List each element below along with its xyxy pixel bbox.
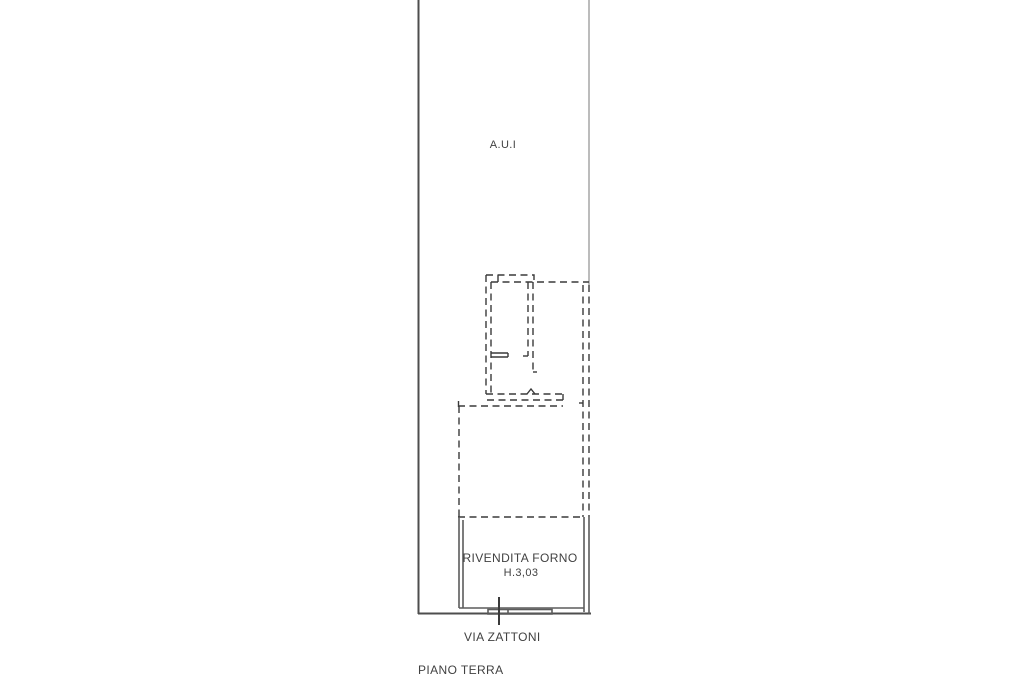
lower-room-dashed-outline <box>458 401 584 517</box>
upper-room-top-outer <box>486 275 534 282</box>
room-name-label: RIVENDITA FORNO <box>462 551 577 565</box>
street-label: VIA ZATTONI <box>464 630 541 644</box>
entrance-threshold <box>488 610 552 615</box>
area-label: A.U.I <box>490 139 516 151</box>
upper-room-dashed-outline <box>486 275 589 400</box>
floor-plan-page: A.U.I RIVENDITA FORNO H.3,03 VIA ZATTONI… <box>0 0 1024 683</box>
room-height-label: H.3,03 <box>504 567 539 579</box>
parcel-boundary <box>418 0 591 614</box>
right-boundary-dashed <box>579 285 589 517</box>
threshold-box <box>488 610 552 615</box>
shop-room-walls <box>459 517 589 614</box>
floor-plan-canvas: A.U.I RIVENDITA FORNO H.3,03 VIA ZATTONI… <box>0 0 1024 683</box>
floor-label: PIANO TERRA <box>418 663 504 677</box>
bottom-caret-mark <box>527 389 535 394</box>
